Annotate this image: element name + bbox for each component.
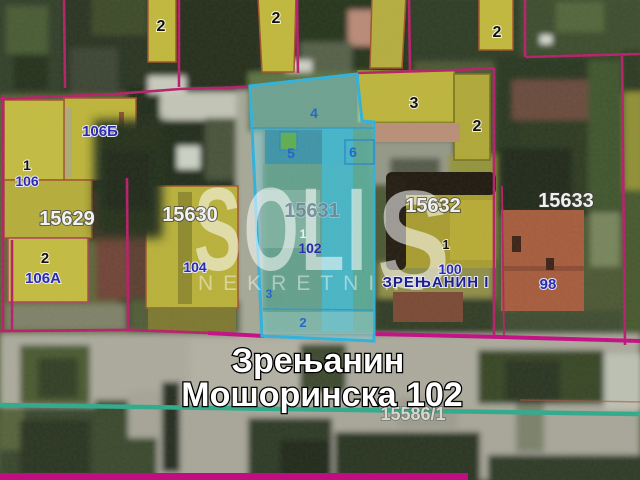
svg-text:106А: 106А: [25, 270, 61, 287]
svg-text:15629: 15629: [39, 208, 95, 230]
svg-text:5: 5: [287, 145, 295, 161]
svg-text:3: 3: [410, 95, 419, 112]
svg-text:15631: 15631: [284, 200, 340, 222]
svg-text:15630: 15630: [162, 204, 218, 226]
svg-text:3: 3: [266, 287, 273, 301]
svg-text:2: 2: [299, 315, 306, 330]
svg-text:1: 1: [442, 237, 449, 252]
svg-text:Мошоринска 102: Мошоринска 102: [181, 376, 462, 414]
svg-text:106: 106: [15, 173, 39, 189]
svg-text:15632: 15632: [405, 195, 461, 217]
svg-text:1: 1: [23, 157, 31, 173]
svg-text:2: 2: [41, 250, 49, 267]
svg-text:2: 2: [473, 118, 482, 135]
svg-text:2: 2: [157, 18, 166, 35]
svg-text:4: 4: [310, 105, 318, 121]
svg-text:6: 6: [349, 144, 357, 160]
svg-text:2: 2: [493, 24, 502, 41]
svg-text:102: 102: [298, 240, 322, 256]
svg-text:2: 2: [272, 10, 281, 27]
svg-text:ЗРЕЊАНИН I: ЗРЕЊАНИН I: [383, 274, 490, 291]
svg-text:15633: 15633: [538, 190, 594, 212]
svg-text:106Б: 106Б: [82, 123, 118, 140]
svg-text:98: 98: [540, 276, 557, 293]
svg-text:1: 1: [300, 227, 307, 241]
svg-text:Зрењанин: Зрењанин: [232, 342, 405, 380]
svg-text:104: 104: [183, 259, 207, 275]
